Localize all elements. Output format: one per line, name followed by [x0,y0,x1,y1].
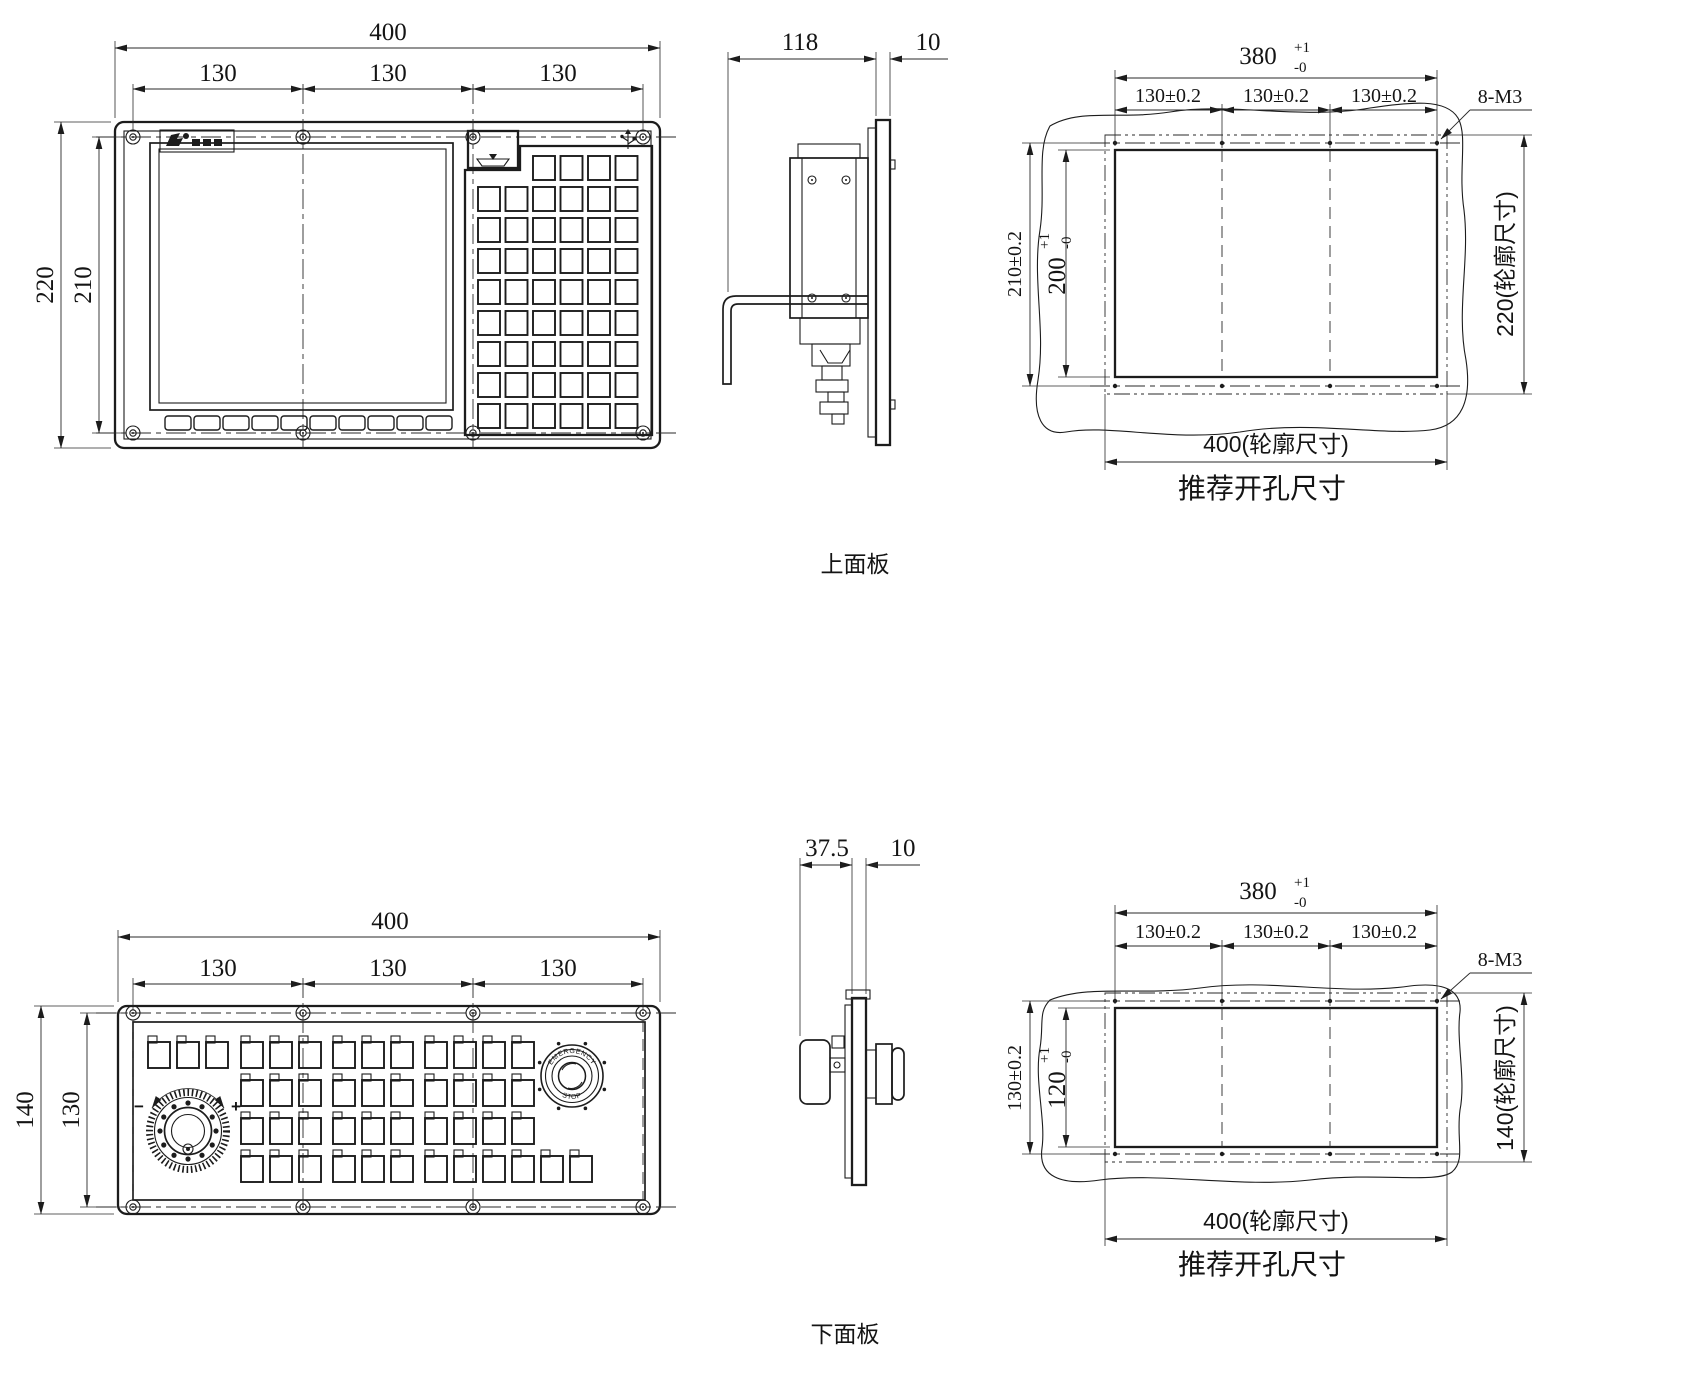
keypad-key [506,404,528,428]
screw-hole-centers-upper [1113,141,1439,388]
hole-center [1220,384,1224,388]
upper-panel-label: 上面板 [821,551,890,577]
handwheel-dot [185,1156,190,1161]
keypad-key [561,311,583,335]
keypad-key [616,342,638,366]
panel-key [333,1080,355,1106]
function-key [165,416,191,430]
dim-hole-pitch-2: 130±0.2 [1243,85,1309,107]
keypad-key [506,342,528,366]
panel-key [391,1042,413,1068]
dim-upper-pitch-1: 130 [199,60,237,87]
lower-side-dimensions: 37.5 10 [800,835,920,1036]
dim-cutout-height-tol-minus: -0 [1059,1051,1075,1064]
outline-height-label: 220(轮廓尺寸) [1492,191,1518,337]
panel-plate-side [876,120,890,445]
panel-outline-phantom [1105,135,1447,394]
lower-panel-side-view: 37.5 10 [800,835,920,1185]
outline-width-label: 400(轮廓尺寸) [1203,1208,1349,1234]
keypad-key [616,373,638,397]
estop-dot [603,1061,607,1065]
function-key [252,416,278,430]
hole-center [1113,1152,1117,1156]
keypad-key [533,311,555,335]
dim-cutout-height: 200 [1044,257,1071,295]
dim-cutout-height-tol-minus: -0 [1059,237,1075,250]
panel-key [270,1118,292,1144]
keypad-area [465,129,652,435]
panel-key [483,1042,505,1068]
upper-cutout-view: 380 +1 -0 130±0.2 130±0.2 130±0.2 8-M3 2… [1004,40,1532,504]
dim-hole-pitch-3: 130±0.2 [1351,921,1417,943]
drawing-canvas: 400 130 130 130 220 210 [0,0,1707,1393]
lower-cutout-view: 380 +1 -0 130±0.2 130±0.2 130±0.2 8-M3 1… [1004,875,1532,1280]
keypad-key [533,218,555,242]
estop-dot [557,1042,561,1046]
panel-key [362,1080,384,1106]
keypad-key [478,280,500,304]
keypad-key [561,373,583,397]
panel-outline-phantom [1105,993,1447,1162]
keypad-key [533,373,555,397]
dim-lower-pitch-1: 130 [199,955,237,982]
handwheel-dot [210,1142,215,1147]
panel-key [512,1118,534,1144]
handwheel-dot [199,1153,204,1158]
keypad-key [533,187,555,211]
panel-key [425,1042,447,1068]
cutout-rect [1115,1008,1437,1147]
keypad-key [533,404,555,428]
panel-key [541,1156,563,1182]
panel-key [333,1156,355,1182]
panel-key [299,1042,321,1068]
keypad-key [533,280,555,304]
dim-upper-depth: 118 [782,29,819,56]
panel-key [270,1156,292,1182]
mounting-screws-upper [126,130,650,440]
keypad-key [616,280,638,304]
keypad-key [588,311,610,335]
brand-logo-mark [166,133,183,146]
panel-key [241,1080,263,1106]
panel-key [299,1118,321,1144]
upper-panel-side-view: 118 10 [723,29,948,445]
function-key [310,416,336,430]
handwheel-dot [171,1153,176,1158]
dim-upper-hole-rows: 210 [70,266,97,304]
panel-key [512,1042,534,1068]
keypad-key [506,280,528,304]
handwheel-dot [161,1142,166,1147]
panel-key [299,1080,321,1106]
keypad-key [478,187,500,211]
hole-center [1328,1152,1332,1156]
panel-key [270,1080,292,1106]
handwheel-side [800,1036,845,1104]
keypad-key [616,218,638,242]
keypad-key [533,156,555,180]
keypad-key [616,156,638,180]
dim-upper-height: 220 [32,266,59,304]
panel-key [362,1118,384,1144]
dim-lower-thickness: 10 [891,835,916,862]
panel-key [512,1156,534,1182]
panel-key [241,1156,263,1182]
keypad-key [533,249,555,273]
panel-key [425,1118,447,1144]
dim-cutout-width: 380 [1239,43,1277,70]
handwheel-dot [171,1104,176,1109]
dim-cutout-width-tol-plus: +1 [1294,40,1310,56]
emergency-stop-button: EMERGENCY STOP [538,1042,606,1110]
keypad-key [561,280,583,304]
outline-width-label: 400(轮廓尺寸) [1203,431,1349,457]
keypad-keys [478,156,638,428]
dim-cutout-height-tol-plus: +1 [1037,1047,1053,1063]
lower-cutout-dimensions: 380 +1 -0 130±0.2 130±0.2 130±0.2 8-M3 1… [1004,875,1532,1280]
dim-hole-row-pitch: 210±0.2 [1004,231,1026,297]
keypad-key [561,342,583,366]
estop-side [866,1044,904,1104]
estop-text-bottom: STOP [561,1092,583,1101]
dim-lower-hole-rows: 130 [58,1091,85,1129]
estop-dot [603,1088,607,1092]
estop-dot [584,1042,588,1046]
handwheel-dot [157,1128,162,1133]
keypad-key [588,373,610,397]
lower-plate-side [852,998,866,1185]
lower-panel-front-view: − + EMERGENCY STOP 400 130 130 130 [12,908,679,1215]
hole-center [1435,1152,1439,1156]
hole-center [1113,384,1117,388]
panel-key [206,1042,228,1068]
handwheel-dot [161,1114,166,1119]
keypad-key [506,311,528,335]
lower-panel-label: 下面板 [811,1321,880,1347]
panel-key [148,1042,170,1068]
handwheel: − + [134,1089,241,1170]
keypad-key [478,373,500,397]
recommended-cutout-caption: 推荐开孔尺寸 [1178,473,1346,504]
dim-cutout-width-tol-plus: +1 [1294,875,1310,891]
keypad-key [616,311,638,335]
lower-key-grid [148,1036,592,1182]
dim-lower-height: 140 [12,1091,39,1129]
dim-hole-row-pitch: 130±0.2 [1004,1045,1026,1111]
keypad-key [506,218,528,242]
screw-hole-centers-lower [1113,999,1439,1156]
keypad-key [588,218,610,242]
svg-text:STOP: STOP [561,1092,583,1101]
dim-hole-pitch-3: 130±0.2 [1351,85,1417,107]
lcd-screen [150,143,453,410]
panel-key [570,1156,592,1182]
dim-hole-pitch-1: 130±0.2 [1135,921,1201,943]
keypad-key [588,342,610,366]
panel-key [362,1156,384,1182]
sheet-outline [1036,103,1467,435]
dim-cutout-width: 380 [1239,878,1277,905]
panel-key [425,1156,447,1182]
upper-side-dimensions: 118 10 [728,29,948,292]
keypad-key [478,218,500,242]
keypad-key [533,342,555,366]
estop-dot [557,1107,561,1111]
estop-dot [538,1088,542,1092]
function-key [426,416,452,430]
dim-cutout-width-tol-minus: -0 [1294,60,1307,76]
upper-panel-front-view: 400 130 130 130 220 210 [32,19,679,449]
keypad-key [588,249,610,273]
dim-upper-thickness: 10 [916,29,941,56]
panel-key [425,1080,447,1106]
handwheel-dot [213,1128,218,1133]
keypad-key [588,156,610,180]
panel-key [270,1042,292,1068]
panel-key [362,1042,384,1068]
dim-lower-width: 400 [371,908,409,935]
hole-center [1435,384,1439,388]
hole-center [1220,1152,1224,1156]
handwheel-dot [185,1100,190,1105]
panel-key [333,1042,355,1068]
function-key [223,416,249,430]
sheet-outline [1038,985,1462,1182]
upper-front-dimensions: 400 130 130 130 220 210 [32,19,660,448]
panel-key [391,1156,413,1182]
panel-key [177,1042,199,1068]
keypad-key [478,342,500,366]
dim-upper-pitch-2: 130 [369,60,407,87]
keypad-key [506,373,528,397]
keypad-key [616,404,638,428]
keypad-key [478,311,500,335]
mounting-bracket [723,296,868,384]
estop-dot [538,1061,542,1065]
panel-key [299,1156,321,1182]
cutout-rect [1115,150,1437,377]
keypad-key [588,404,610,428]
panel-key [241,1118,263,1144]
function-key [397,416,423,430]
handwheel-minus-sign: − [134,1097,144,1116]
keypad-key [616,249,638,273]
function-key [368,416,394,430]
keypad-key [561,249,583,273]
keypad-key [561,218,583,242]
keypad-key [506,187,528,211]
upper-panel-outline [115,122,660,448]
keypad-key [478,404,500,428]
handwheel-plus-sign: + [231,1097,241,1116]
dim-upper-width: 400 [369,19,407,46]
keypad-key [561,156,583,180]
engineering-drawing: 400 130 130 130 220 210 [0,0,1707,1393]
keypad-key [616,187,638,211]
keypad-key [478,249,500,273]
dim-lower-depth: 37.5 [805,835,849,862]
panel-key [483,1080,505,1106]
handwheel-dot [199,1104,204,1109]
panel-key [241,1042,263,1068]
upper-cutout-dimensions: 380 +1 -0 130±0.2 130±0.2 130±0.2 8-M3 2… [1004,40,1532,504]
keypad-key [588,187,610,211]
panel-key [391,1080,413,1106]
thread-callout: 8-M3 [1478,86,1522,108]
keypad-key [506,249,528,273]
panel-key [483,1156,505,1182]
dim-lower-pitch-2: 130 [369,955,407,982]
function-key [339,416,365,430]
keypad-key [561,404,583,428]
dim-hole-pitch-1: 130±0.2 [1135,85,1201,107]
keypad-key [561,187,583,211]
panel-key [512,1080,534,1106]
function-key [194,416,220,430]
hole-center [1328,384,1332,388]
recommended-cutout-caption: 推荐开孔尺寸 [1178,1249,1346,1280]
dim-hole-pitch-2: 130±0.2 [1243,921,1309,943]
panel-key [483,1118,505,1144]
keypad-key [588,280,610,304]
dim-cutout-height: 120 [1044,1071,1071,1109]
panel-key [333,1118,355,1144]
dim-cutout-width-tol-minus: -0 [1294,895,1307,911]
handwheel-dot [210,1114,215,1119]
outline-height-label: 140(轮廓尺寸) [1492,1005,1518,1151]
thread-callout: 8-M3 [1478,949,1522,971]
dim-upper-pitch-3: 130 [539,60,577,87]
dim-cutout-height-tol-plus: +1 [1037,233,1053,249]
dim-lower-pitch-3: 130 [539,955,577,982]
estop-dot [584,1107,588,1111]
panel-key [391,1118,413,1144]
